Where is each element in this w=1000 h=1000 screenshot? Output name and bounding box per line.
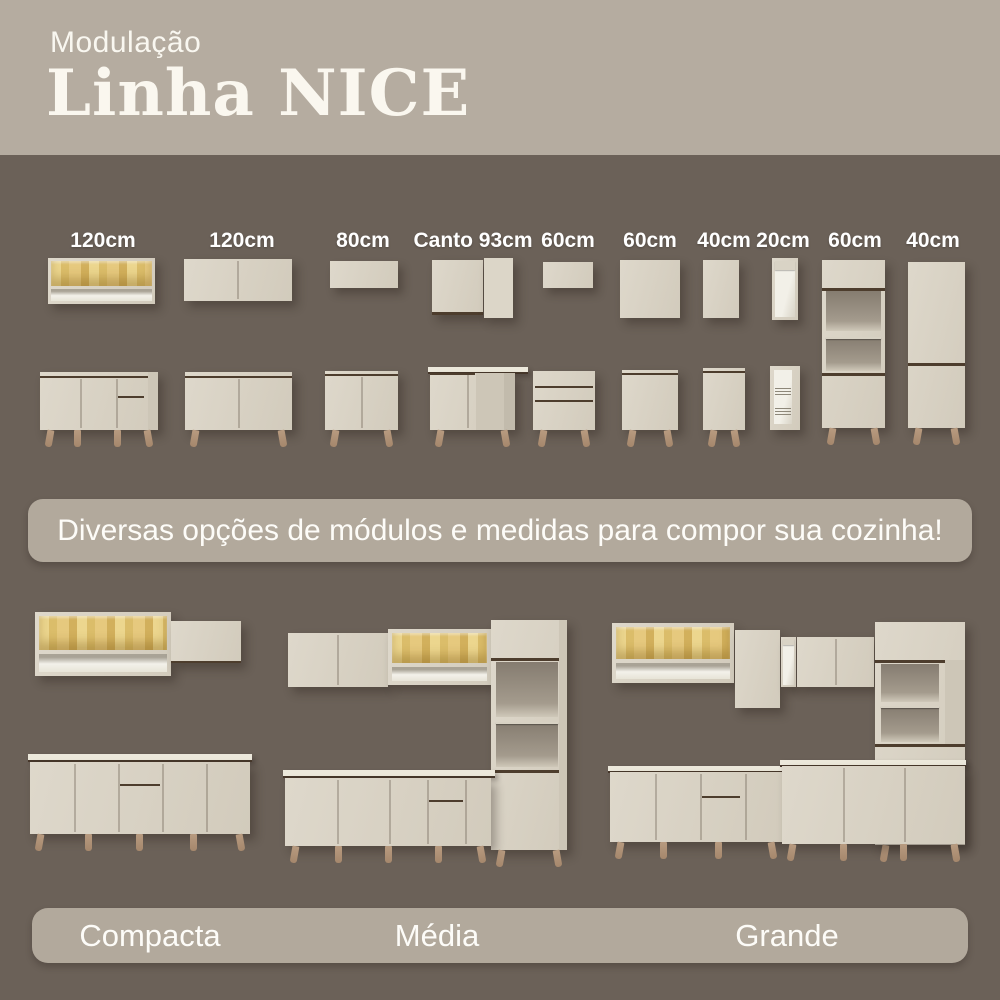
grande-base-right [782,766,965,844]
module-base-120cm-drawer [40,372,158,430]
leg [85,834,92,851]
door-divider [74,764,76,832]
open-shelf [39,654,167,672]
module-label-9: 60cm [828,229,882,253]
media-countertop [283,770,495,778]
module-base-canto-93cm [428,367,528,448]
dark-trim [171,661,241,663]
module-label-2: 120cm [209,229,274,253]
module-upper-120cm-doors [184,259,292,301]
drawer-line [120,784,160,786]
kitchen-label-media: Média [395,918,479,954]
drawer-line [535,400,593,402]
wire-rack [775,394,791,395]
compacta-base [30,762,250,834]
shelf-rail [826,337,881,339]
module-label-4: Canto 93cm [413,229,532,253]
banner-text: Diversas opções de módulos e medidas par… [57,514,942,548]
module-tower-60cm [822,260,885,428]
module-base-120cm-doors [185,372,292,430]
module-upper-20cm-niche [772,258,798,320]
door-divider [427,780,429,844]
compacta-countertop [28,754,252,762]
dark-trim [908,363,965,366]
leg [900,844,907,861]
poster: Modulação Linha NICE 120cm 120cm 80cm Ca… [0,0,1000,1000]
open-shelf [616,663,730,679]
module-base-20cm-bottle-rack [770,366,800,430]
door-divider [700,774,702,840]
open-niche [881,706,939,742]
open-niche [496,662,558,717]
corner-side-panel [484,258,513,318]
shelf-rail [881,706,939,708]
door-divider [80,379,82,428]
grande-upper-corner-door [735,630,780,708]
grande-upper-cubbies [781,637,796,687]
side-panel [559,620,567,850]
shelf [783,642,794,645]
media-upper-glass [388,629,491,685]
door-divider [465,780,467,844]
side-panel [945,660,965,744]
dark-trim [185,376,292,378]
drawer-line [429,800,463,802]
page-title: Linha NICE [46,56,470,131]
rack-interior [774,370,792,424]
leg [74,430,81,447]
module-upper-60cm-small [543,262,593,288]
module-base-80cm [325,371,398,430]
wire-rack [775,388,791,389]
leg [660,842,667,859]
dark-trim [491,770,567,773]
leg [114,430,121,447]
module-tower-40cm [908,262,965,428]
leg [435,846,442,863]
drawer-line [535,386,593,388]
amber-glass-door [616,627,730,659]
compacta-upper-door [171,621,241,663]
dark-trim [491,658,567,661]
dark-trim [325,374,398,376]
kitchen-label-compacta: Compacta [79,918,220,954]
leg [840,844,847,861]
shelf-rail [496,722,558,724]
door-divider [337,635,339,685]
niche-interior [775,261,795,317]
amber-glass-door [392,633,487,663]
door-divider [237,261,239,299]
angled-panel [476,373,504,430]
leg [335,846,342,863]
grande-upper-doors [797,637,874,687]
dark-trim [622,373,678,375]
media-tower [491,620,567,850]
wire-rack [775,414,791,415]
module-label-1: 120cm [70,229,135,253]
header: Modulação Linha NICE [0,0,1000,155]
module-upper-120cm-glass [48,258,155,304]
module-base-60cm-drawers [533,371,595,430]
media-base [285,778,491,846]
module-label-3: 80cm [336,229,390,253]
kitchen-label-grande: Grande [735,918,838,954]
niche-interior [783,639,794,685]
door-divider [843,768,845,842]
wire-rack [775,408,791,409]
compacta-upper-glass [35,612,171,676]
amber-glass-door [39,616,167,650]
wire-rack [775,411,791,412]
open-niche [881,664,939,702]
module-label-5: 60cm [541,229,595,253]
banner-pill: Diversas opções de módulos e medidas par… [28,499,972,562]
wire-rack [775,391,791,392]
door-divider [904,768,906,842]
side-panel [504,373,515,430]
door-divider [361,377,363,428]
media-upper-doors [288,633,388,687]
leg [385,846,392,863]
door-divider [655,774,657,840]
module-base-40cm [703,368,745,430]
module-label-8: 20cm [756,229,810,253]
door-divider [389,780,391,844]
door-divider [116,379,118,428]
open-shelf [392,667,487,681]
door-divider [238,379,240,428]
door-divider [337,780,339,844]
corner-door [432,260,483,315]
open-niche [496,722,558,767]
amber-glass-door [51,261,152,286]
dark-trim [432,312,483,315]
door-divider [835,639,837,685]
side-panel [148,372,158,430]
door-divider [118,764,120,832]
header-kicker: Modulação [50,26,201,60]
dark-trim [875,744,965,747]
dark-trim [822,373,885,376]
module-base-60cm [622,370,678,430]
leg [136,834,143,851]
dark-trim [40,376,158,378]
module-label-6: 60cm [623,229,677,253]
open-niche [826,337,881,371]
door-divider [745,774,747,840]
grande-upper-glass [612,623,734,683]
open-niche [826,291,881,331]
module-upper-40cm [703,260,739,318]
drawer-line [118,396,144,398]
open-shelf [51,289,152,301]
module-upper-80cm [330,261,398,288]
corner-base-body [430,373,515,430]
grande-base-left [610,772,782,842]
door-divider [162,764,164,832]
sizes-pill: Compacta Média Grande [32,908,968,963]
module-label-10: 40cm [906,229,960,253]
dark-trim [703,371,745,373]
door-divider [206,764,208,832]
drawer-line [702,796,740,798]
module-label-7: 40cm [697,229,751,253]
shelf [775,267,795,270]
module-upper-60cm [620,260,680,318]
leg [715,842,722,859]
module-upper-canto-93cm [432,258,528,318]
leg [190,834,197,851]
door-divider [467,375,469,428]
